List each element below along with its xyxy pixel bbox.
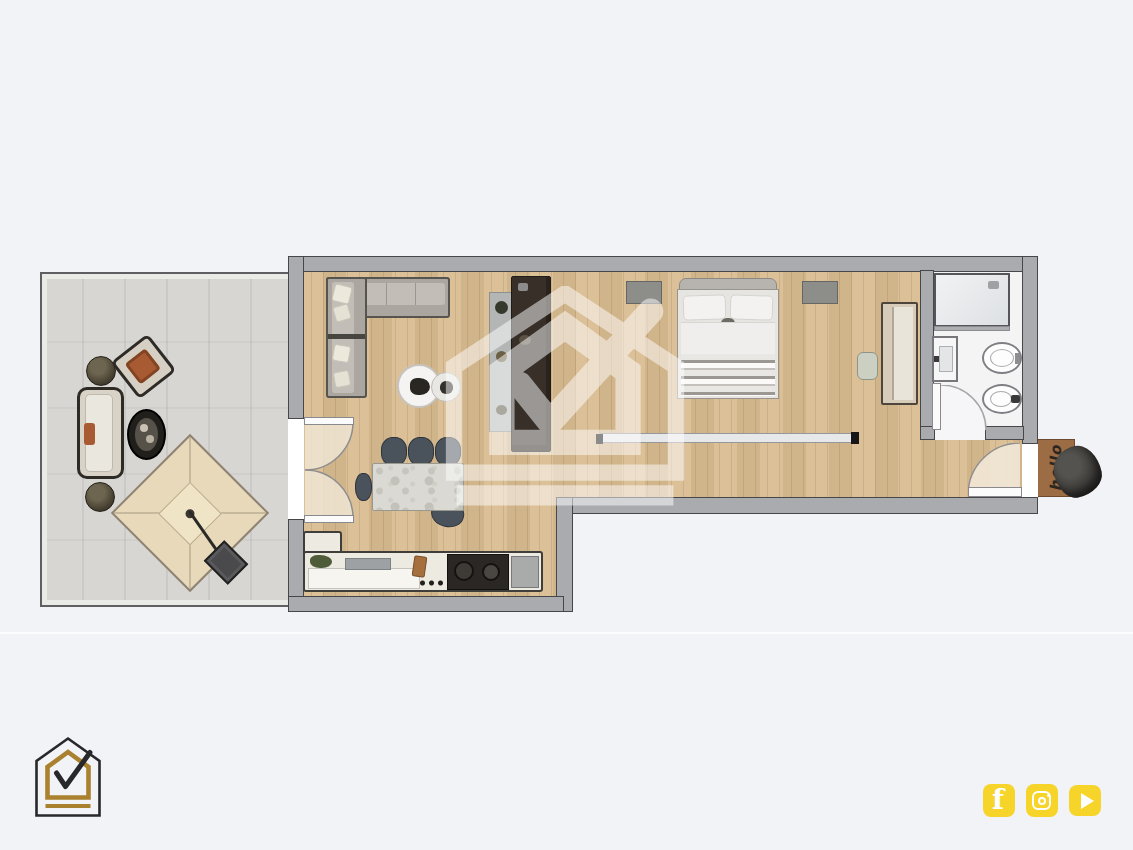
nightstand-right <box>802 281 838 304</box>
facebook-icon: f <box>992 783 1004 816</box>
wardrobe <box>881 302 918 405</box>
terrace-door-swing-bottom <box>305 468 357 520</box>
wardrobe-door <box>892 307 913 400</box>
shower-glass <box>934 326 1010 331</box>
outdoor-coffee-table-top <box>135 418 158 451</box>
entrance-opening <box>1022 443 1038 498</box>
bathroom-door-leaf <box>932 383 941 430</box>
outdoor-sofa-pillow <box>84 423 95 445</box>
toilet <box>982 342 1022 374</box>
floor-plan-page: hello f <box>0 0 1133 850</box>
kitchen-plant <box>310 555 332 568</box>
terrace-door-leaf-top <box>304 417 354 425</box>
terrace-door-opening <box>288 418 304 520</box>
dining-chair <box>355 473 372 501</box>
kitchen-counter <box>303 551 543 592</box>
sofa-divider <box>328 334 365 339</box>
kitchen-end-unit <box>511 556 539 588</box>
cooktop <box>447 554 509 590</box>
bathroom-door-swing <box>941 385 987 431</box>
terrace-plant-pot-2 <box>85 482 115 512</box>
entrance-door-leaf <box>968 487 1022 497</box>
toilet-bowl <box>990 349 1014 367</box>
dining-chair <box>381 437 407 465</box>
kitchen-appliance <box>345 558 391 570</box>
outdoor-sofa <box>77 387 124 479</box>
background-divider-line <box>0 632 1133 634</box>
pan <box>454 561 474 581</box>
bed-pillow <box>730 294 774 320</box>
corner-sofa-chaise <box>326 277 367 398</box>
instagram-lens <box>1038 797 1046 805</box>
youtube-play-icon <box>1081 793 1094 809</box>
bidet <box>982 384 1022 414</box>
basin <box>939 346 953 372</box>
wall-bottom-left <box>288 596 564 612</box>
partition-end-cap <box>851 432 859 444</box>
cutting-board <box>412 555 428 578</box>
bidet-faucet <box>1011 395 1020 403</box>
house-check-logo <box>33 736 103 818</box>
instagram-flash-dot <box>1047 794 1050 797</box>
sofa-pillow <box>332 344 352 364</box>
shower <box>934 273 1010 327</box>
bedroom-stool <box>857 352 878 380</box>
tray-item <box>146 435 154 443</box>
outdoor-coffee-table <box>127 409 166 460</box>
outdoor-chair-cushion <box>125 348 161 384</box>
house-check-watermark <box>438 286 692 518</box>
dining-chair <box>408 437 434 465</box>
bidet-basin <box>990 391 1012 407</box>
pan <box>482 563 500 581</box>
terrace-door-swing-top <box>305 420 357 472</box>
toilet-hinge <box>1015 353 1020 364</box>
instagram-button[interactable] <box>1026 784 1058 817</box>
shower-head <box>988 281 999 289</box>
faucet <box>934 356 939 362</box>
terrace-door-leaf-bottom <box>304 515 354 523</box>
bed-duvet <box>681 322 775 354</box>
facebook-button[interactable]: f <box>983 784 1015 817</box>
washbasin <box>932 336 958 382</box>
terrace-plant-pot-1 <box>86 356 116 386</box>
counter-front <box>308 568 420 589</box>
youtube-button[interactable] <box>1069 785 1101 816</box>
tray-item <box>140 424 148 432</box>
wall-right <box>1022 256 1038 445</box>
sofa-pillow <box>333 370 352 389</box>
bed-blanket-striped <box>681 354 775 396</box>
table-plant <box>410 378 430 395</box>
